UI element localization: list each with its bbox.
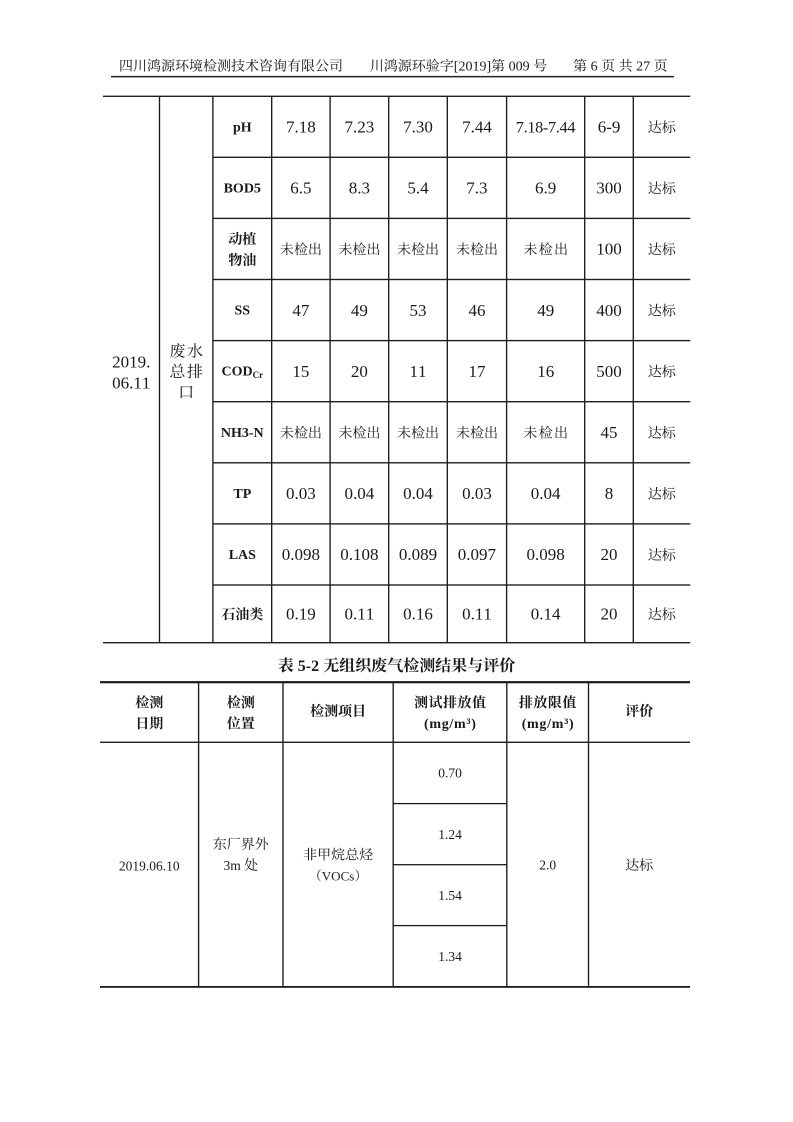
svg-text:0.04: 0.04: [403, 484, 433, 503]
svg-text:2.0: 2.0: [539, 857, 556, 872]
svg-text:17: 17: [469, 362, 487, 381]
svg-text:pH: pH: [233, 120, 252, 135]
svg-text:6-9: 6-9: [598, 118, 621, 137]
svg-text:0.04: 0.04: [345, 484, 375, 503]
svg-text:0.14: 0.14: [531, 605, 561, 624]
svg-text:3m: 3m: [224, 858, 242, 873]
svg-text:0.19: 0.19: [286, 605, 316, 624]
svg-text:7.18: 7.18: [286, 118, 316, 137]
svg-text:49: 49: [537, 301, 554, 320]
svg-text:0.108: 0.108: [340, 545, 378, 564]
svg-text:2019.06.10: 2019.06.10: [119, 859, 180, 874]
svg-text:7.23: 7.23: [345, 118, 375, 137]
svg-text:Cr: Cr: [253, 370, 264, 380]
svg-text:0.03: 0.03: [286, 484, 316, 503]
svg-text:0.097: 0.097: [458, 545, 497, 564]
svg-text:[2019]: [2019]: [454, 60, 491, 75]
svg-text:NH3-N: NH3-N: [221, 426, 264, 441]
svg-text:0.04: 0.04: [531, 484, 561, 503]
svg-text:27: 27: [636, 60, 650, 75]
svg-text:009: 009: [509, 60, 530, 75]
svg-text:0.089: 0.089: [399, 545, 437, 564]
svg-text:7.44: 7.44: [462, 118, 492, 137]
svg-text:400: 400: [596, 301, 622, 320]
svg-text:6: 6: [591, 60, 598, 75]
svg-text:6.5: 6.5: [290, 179, 311, 198]
svg-text:500: 500: [596, 362, 622, 381]
svg-text:1.24: 1.24: [438, 827, 462, 842]
svg-text:20: 20: [601, 605, 618, 624]
svg-text:7.3: 7.3: [466, 179, 487, 198]
svg-text:46: 46: [469, 301, 486, 320]
svg-text:7.30: 7.30: [403, 118, 433, 137]
svg-text:300: 300: [596, 179, 622, 198]
svg-text:0.098: 0.098: [527, 545, 565, 564]
svg-text:LAS: LAS: [229, 548, 256, 563]
svg-text:100: 100: [596, 240, 622, 259]
svg-text:06.11: 06.11: [112, 373, 150, 392]
svg-text:20: 20: [351, 362, 368, 381]
svg-text:(mg/m³): (mg/m³): [424, 717, 477, 732]
svg-text:6.9: 6.9: [535, 179, 556, 198]
svg-text:20: 20: [601, 545, 618, 564]
svg-text:5.4: 5.4: [407, 179, 429, 198]
svg-text:1.54: 1.54: [438, 888, 462, 903]
svg-text:8.3: 8.3: [349, 179, 370, 198]
svg-text:2019.: 2019.: [112, 352, 150, 371]
svg-text:11: 11: [410, 362, 427, 381]
svg-text:SS: SS: [235, 304, 251, 319]
svg-text:(mg/m³): (mg/m³): [522, 717, 575, 732]
svg-text:TP: TP: [233, 487, 251, 502]
svg-text:0.11: 0.11: [345, 605, 375, 624]
svg-text:VOCs: VOCs: [322, 868, 355, 883]
svg-text:0.70: 0.70: [438, 766, 462, 781]
svg-text:53: 53: [410, 301, 427, 320]
svg-text:16: 16: [537, 362, 554, 381]
svg-text:0.16: 0.16: [403, 605, 433, 624]
svg-text:0.03: 0.03: [462, 484, 492, 503]
svg-text:BOD5: BOD5: [224, 182, 261, 197]
svg-text:COD: COD: [222, 365, 253, 380]
svg-text:0.11: 0.11: [462, 605, 492, 624]
svg-text:0.098: 0.098: [282, 545, 320, 564]
svg-text:15: 15: [292, 362, 309, 381]
svg-text:49: 49: [351, 301, 368, 320]
svg-text:45: 45: [601, 423, 618, 442]
svg-text:7.18-7.44: 7.18-7.44: [516, 119, 576, 137]
svg-text:1.34: 1.34: [438, 949, 462, 964]
svg-text:5-2: 5-2: [298, 658, 319, 675]
svg-text:47: 47: [292, 301, 310, 320]
svg-text:8: 8: [605, 484, 614, 503]
